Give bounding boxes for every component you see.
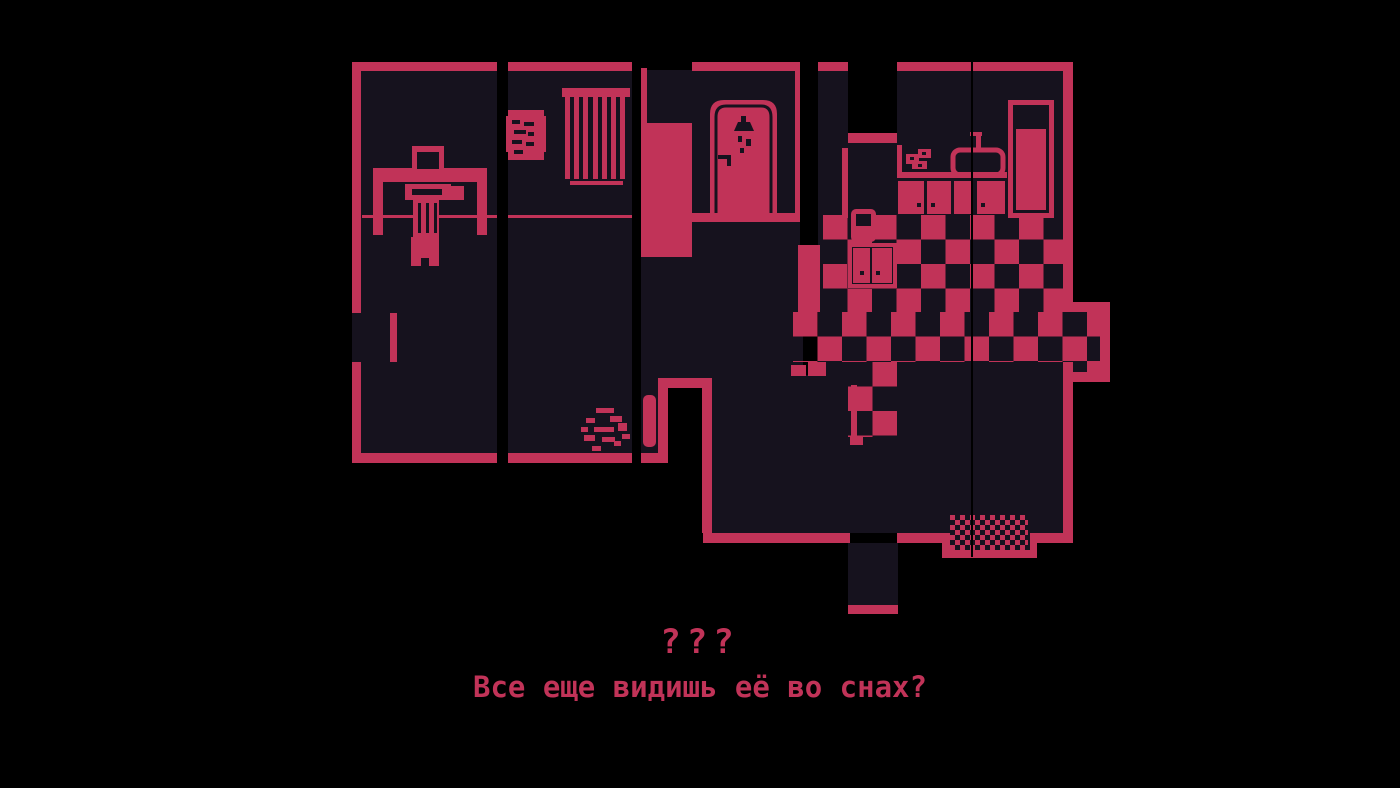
wall-cabinet-sprite xyxy=(848,243,897,288)
room-entrance xyxy=(950,515,1028,552)
top-nook xyxy=(848,62,897,133)
wall-poster-sprite xyxy=(506,110,546,160)
apartment-map xyxy=(0,0,1400,788)
map-seam xyxy=(971,62,973,557)
game-screen[interactable]: ??? Все еще видишь её во снах? xyxy=(0,0,1400,788)
shower-door-sprite xyxy=(710,100,777,213)
counter-edge xyxy=(842,148,848,218)
person-on-chair-sprite xyxy=(411,200,439,266)
room-bathroom xyxy=(710,100,777,213)
open-doorway xyxy=(668,388,702,463)
fridge-sprite xyxy=(1008,100,1054,218)
kitchen-chair-sprite xyxy=(851,209,876,242)
doormat-sprite xyxy=(950,515,1028,552)
door-leaf-sprite xyxy=(643,395,656,447)
wall-slot xyxy=(800,62,818,245)
